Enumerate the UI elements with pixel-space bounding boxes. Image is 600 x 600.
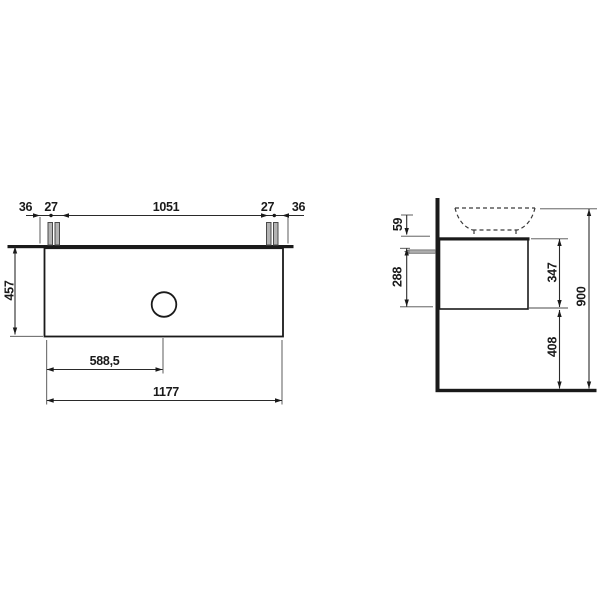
hanger-bolt-icon (55, 223, 60, 246)
arrowhead-icon (405, 228, 409, 235)
side-view: 59 288 347 408 900 (391, 198, 598, 392)
dim-label-36-left: 36 (19, 200, 33, 214)
arrowhead-icon (62, 213, 69, 217)
dim-label-288: 288 (391, 267, 405, 287)
arrowhead-icon (282, 213, 289, 217)
arrowhead-icon (587, 209, 591, 216)
dim-label-27-right: 27 (261, 200, 275, 214)
arrowhead-icon (47, 398, 54, 402)
dim-label-59: 59 (391, 218, 405, 232)
drain-hole-circle (152, 292, 177, 317)
arrowhead-icon (557, 310, 561, 317)
arrowhead-icon (557, 300, 561, 307)
dim-label-588-5: 588,5 (90, 354, 120, 368)
arrowhead-icon (557, 239, 561, 246)
hanger-bolt-icon (267, 223, 272, 246)
dim-label-27-left: 27 (44, 200, 58, 214)
technical-drawing-page: 36 27 1051 27 36 457 588,5 1177 (0, 0, 600, 600)
dim-label-457: 457 (3, 280, 17, 300)
hanger-bolt-icon (48, 223, 53, 246)
arrowhead-icon (156, 367, 163, 371)
dim-label-408: 408 (546, 337, 560, 357)
dim-label-900: 900 (575, 286, 589, 306)
cabinet-side (440, 239, 529, 310)
dimension-dot (49, 214, 52, 217)
washbasin-dashed-outline (455, 208, 535, 237)
dim-label-347: 347 (546, 262, 560, 282)
arrowhead-icon (557, 382, 561, 389)
arrowhead-icon (47, 367, 54, 371)
hanger-bolt-icon (274, 223, 279, 246)
arrowhead-icon (33, 213, 40, 217)
front-view: 36 27 1051 27 36 457 588,5 1177 (3, 200, 306, 405)
vanity-dimension-drawing: 36 27 1051 27 36 457 588,5 1177 (0, 0, 600, 600)
dim-label-1177: 1177 (153, 385, 179, 399)
dim-label-1051: 1051 (153, 200, 180, 214)
countertop-side (437, 237, 530, 240)
dimension-dot (273, 214, 276, 217)
arrowhead-icon (275, 398, 282, 402)
mounting-screw-icon (405, 250, 436, 253)
arrowhead-icon (405, 300, 409, 307)
dim-label-36-right: 36 (292, 200, 306, 214)
arrowhead-icon (587, 382, 591, 389)
floor-line (436, 389, 597, 392)
arrowhead-icon (13, 328, 17, 335)
